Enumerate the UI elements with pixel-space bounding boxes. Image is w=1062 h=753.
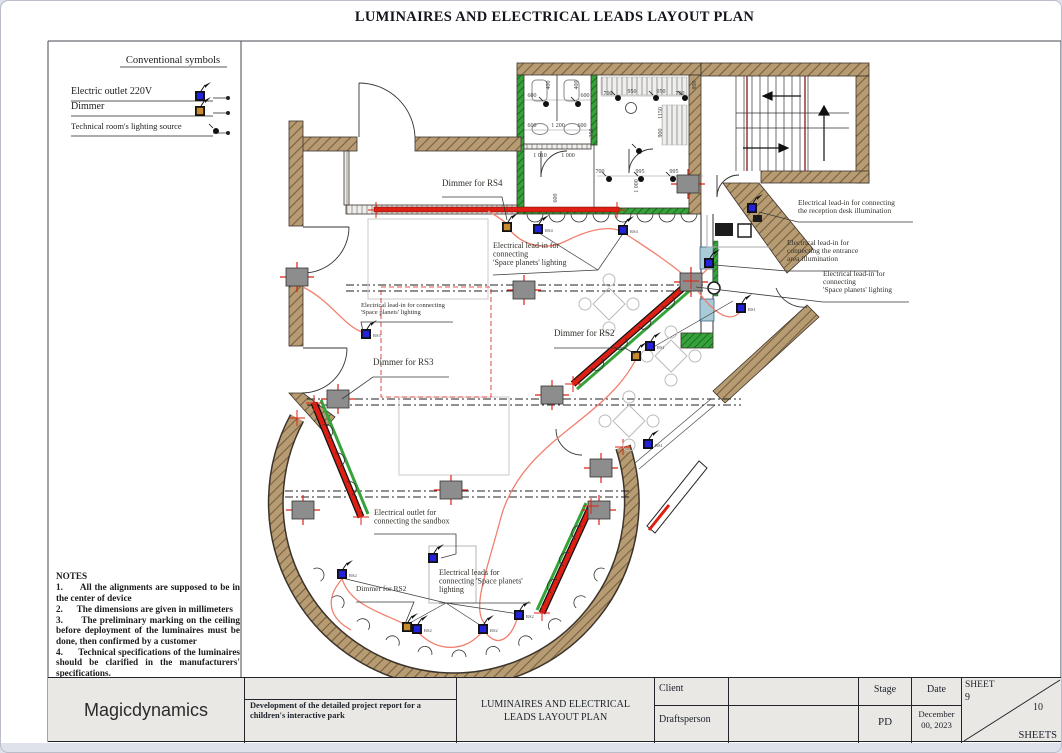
svg-text:995: 995 <box>636 169 645 175</box>
notes-title: NOTES <box>56 571 240 581</box>
svg-text:RS4: RS4 <box>630 229 639 234</box>
date-cell: Date December 00, 2023 <box>911 678 961 743</box>
stage-cell: Stage PD <box>858 678 911 743</box>
client-label: Client <box>659 683 683 694</box>
svg-text:the reception desk illuminatio: the reception desk illumination <box>798 206 891 215</box>
svg-text:600: 600 <box>578 123 587 129</box>
svg-text:400: 400 <box>574 81 580 90</box>
svg-text:950: 950 <box>628 89 637 95</box>
svg-text:600: 600 <box>553 194 559 203</box>
sheet-cell: SHEET 9 10 SHEETS <box>961 678 1061 743</box>
svg-text:350: 350 <box>589 129 595 138</box>
date-label: Date <box>912 684 961 695</box>
svg-text:RS1: RS1 <box>655 443 663 448</box>
svg-text:400: 400 <box>546 81 552 90</box>
svg-text:Technical room's lighting sour: Technical room's lighting source <box>71 121 182 131</box>
project-description: Development of the detailed project repo… <box>250 701 452 721</box>
svg-text:1 000: 1 000 <box>634 179 640 193</box>
sheet-number: 9 <box>965 692 970 703</box>
svg-text:1150: 1150 <box>658 107 664 119</box>
roles-value-cell <box>728 678 858 743</box>
svg-text:RS2: RS2 <box>349 573 357 578</box>
svg-text:700: 700 <box>676 91 685 97</box>
svg-text:RS3: RS3 <box>373 333 382 338</box>
svg-text:Dimmer for RS2: Dimmer for RS2 <box>356 584 407 593</box>
stage-value: PD <box>859 716 911 728</box>
svg-text:1 000: 1 000 <box>561 153 575 159</box>
roles-cell: Client Draftsperson <box>654 678 728 743</box>
svg-text:950: 950 <box>657 89 666 95</box>
drawing-sheet: RS4RS4RS3RS1RS1RS1RS2RS2RS2RS2Dimmer for… <box>0 0 1062 753</box>
note-item: 4. Technical specifications of the lumin… <box>56 647 240 678</box>
svg-text:700: 700 <box>604 91 613 97</box>
svg-text:RS1: RS1 <box>657 345 665 350</box>
svg-text:600: 600 <box>528 123 537 129</box>
svg-text:RS2: RS2 <box>526 614 534 619</box>
svg-text:995: 995 <box>670 169 679 175</box>
svg-text:RS2: RS2 <box>424 628 432 633</box>
svg-text:600: 600 <box>528 93 537 99</box>
sheets-label: SHEETS <box>1018 730 1057 741</box>
company-name: Magicdynamics <box>48 678 244 743</box>
svg-text:Dimmer for RS2: Dimmer for RS2 <box>554 328 615 338</box>
svg-text:1 010: 1 010 <box>533 153 547 159</box>
draftsperson-label: Draftsperson <box>659 714 711 725</box>
project-cell: Development of the detailed project repo… <box>244 678 456 743</box>
svg-text:RS4: RS4 <box>545 228 554 233</box>
date-value: December 00, 2023 <box>912 709 961 730</box>
svg-text:connecting the sandbox: connecting the sandbox <box>374 517 450 526</box>
svg-text:700: 700 <box>596 169 605 175</box>
svg-text:RS1: RS1 <box>748 307 756 312</box>
svg-text:area illumination: area illumination <box>787 254 838 263</box>
note-item: 1. All the alignments are supposed to be… <box>56 582 240 603</box>
svg-text:Electrical lead-in for connect: Electrical lead-in for connecting <box>361 302 446 309</box>
svg-text:'Space planets' lighting: 'Space planets' lighting <box>823 285 892 294</box>
sheets-total: 10 <box>1033 702 1043 713</box>
page-title: LUMINAIRES AND ELECTRICAL LEADS LAYOUT P… <box>48 9 1061 26</box>
svg-text:Electric outlet 220V: Electric outlet 220V <box>71 86 153 97</box>
svg-text:'Space planets' lighting: 'Space planets' lighting <box>493 258 567 267</box>
svg-text:Dimmer for RS4: Dimmer for RS4 <box>442 178 503 188</box>
svg-text:'Space planets' lighting: 'Space planets' lighting <box>361 309 421 316</box>
svg-text:600: 600 <box>581 93 590 99</box>
drawing-title: LUMINAIRES AND ELECTRICAL LEADS LAYOUT P… <box>456 678 654 743</box>
drawing-page: RS4RS4RS3RS1RS1RS1RS2RS2RS2RS2Dimmer for… <box>1 1 1061 743</box>
svg-text:Dimmer: Dimmer <box>71 101 105 112</box>
svg-text:900: 900 <box>658 129 664 138</box>
stage-label: Stage <box>859 684 911 695</box>
svg-text:Dimmer for RS3: Dimmer for RS3 <box>373 357 434 367</box>
svg-text:Conventional symbols: Conventional symbols <box>126 55 220 66</box>
note-item: 3. The preliminary marking on the ceilin… <box>56 615 240 646</box>
svg-text:RS2: RS2 <box>490 628 498 633</box>
sheet-label: SHEET <box>965 680 995 690</box>
notes-block: NOTES 1. All the alignments are supposed… <box>56 571 240 679</box>
title-block: Magicdynamics Development of the detaile… <box>48 677 1061 742</box>
title-block-row-divider <box>654 705 961 706</box>
svg-text:lighting: lighting <box>439 585 464 594</box>
note-item: 2. The dimensions are given in millimete… <box>56 604 240 614</box>
svg-text:1 200: 1 200 <box>551 123 565 129</box>
svg-text:800: 800 <box>692 81 698 90</box>
